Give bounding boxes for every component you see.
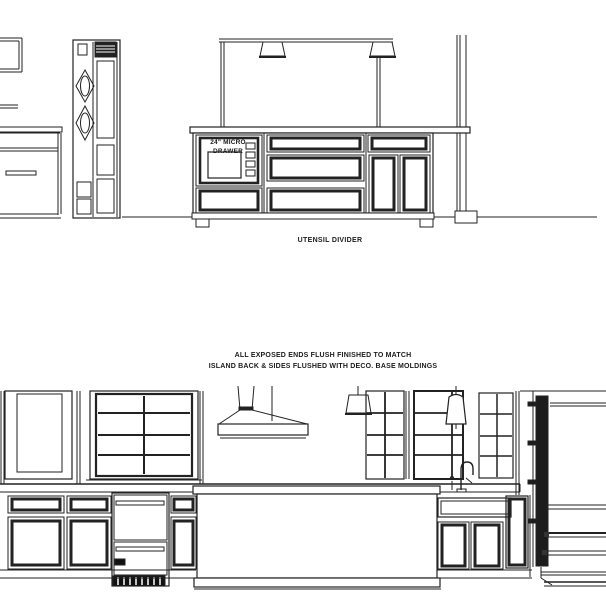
window [479,391,519,495]
micro-drawer-label: 24" MICRO DRAWER [199,139,257,156]
faucet-icon [450,462,473,492]
tall-cabinet-door [5,391,80,484]
stair-lines [541,505,606,586]
cabinet-door [471,522,503,569]
island-caption: UTENSIL DIVIDER [190,237,470,244]
pendant-light [345,386,372,414]
base-cabinet [67,496,111,569]
micro-drawer-label-line2: DRAWER [199,148,257,157]
cabinet-door [67,517,111,569]
cabinet-door [438,522,469,569]
window [366,391,409,479]
cabinet-door [171,517,196,569]
diamond-motif [76,106,94,140]
finish-note-line1: ALL EXPOSED ENDS FLUSH FINISHED TO MATCH [33,351,606,362]
wall-edge [1,391,4,484]
trim-column [520,391,606,567]
appliance-drawers [112,493,169,586]
drawer-front [171,496,196,513]
island-base [192,213,434,227]
finish-note-line2: ISLAND BACK & SIDES FLUSHED WITH DECO. B… [33,362,606,373]
window [86,391,202,480]
sink-cabinet [437,495,532,578]
kitchen-elevation-drawing [0,386,606,589]
island-countertop [193,486,440,494]
pendant-light [259,42,286,57]
end-panel [506,496,528,568]
range-hood [218,386,308,438]
pendant-light [369,42,396,57]
island-elevation-drawing [0,35,597,227]
drawer-front [8,496,64,513]
finish-note: ALL EXPOSED ENDS FLUSH FINISHED TO MATCH… [33,351,606,372]
left-base-cabinet [0,127,62,218]
decorative-column [73,40,120,218]
linework [0,0,606,600]
diamond-motif [76,70,94,102]
drawer-front [67,496,111,513]
upper-cabinet-corner [0,38,22,108]
back-frame [219,39,393,127]
base-cabinet [8,496,64,569]
micro-drawer-label-line1: 24" MICRO [199,139,257,148]
cabinet-door [8,517,64,569]
wall-line [200,391,203,484]
base-cabinet [171,496,196,569]
base-molding [194,578,440,587]
elevation-sheet: 24" MICRO DRAWER UTENSIL DIVIDER ALL EXP… [0,0,606,600]
island-back-panel [193,486,441,589]
island-countertop [190,127,470,133]
